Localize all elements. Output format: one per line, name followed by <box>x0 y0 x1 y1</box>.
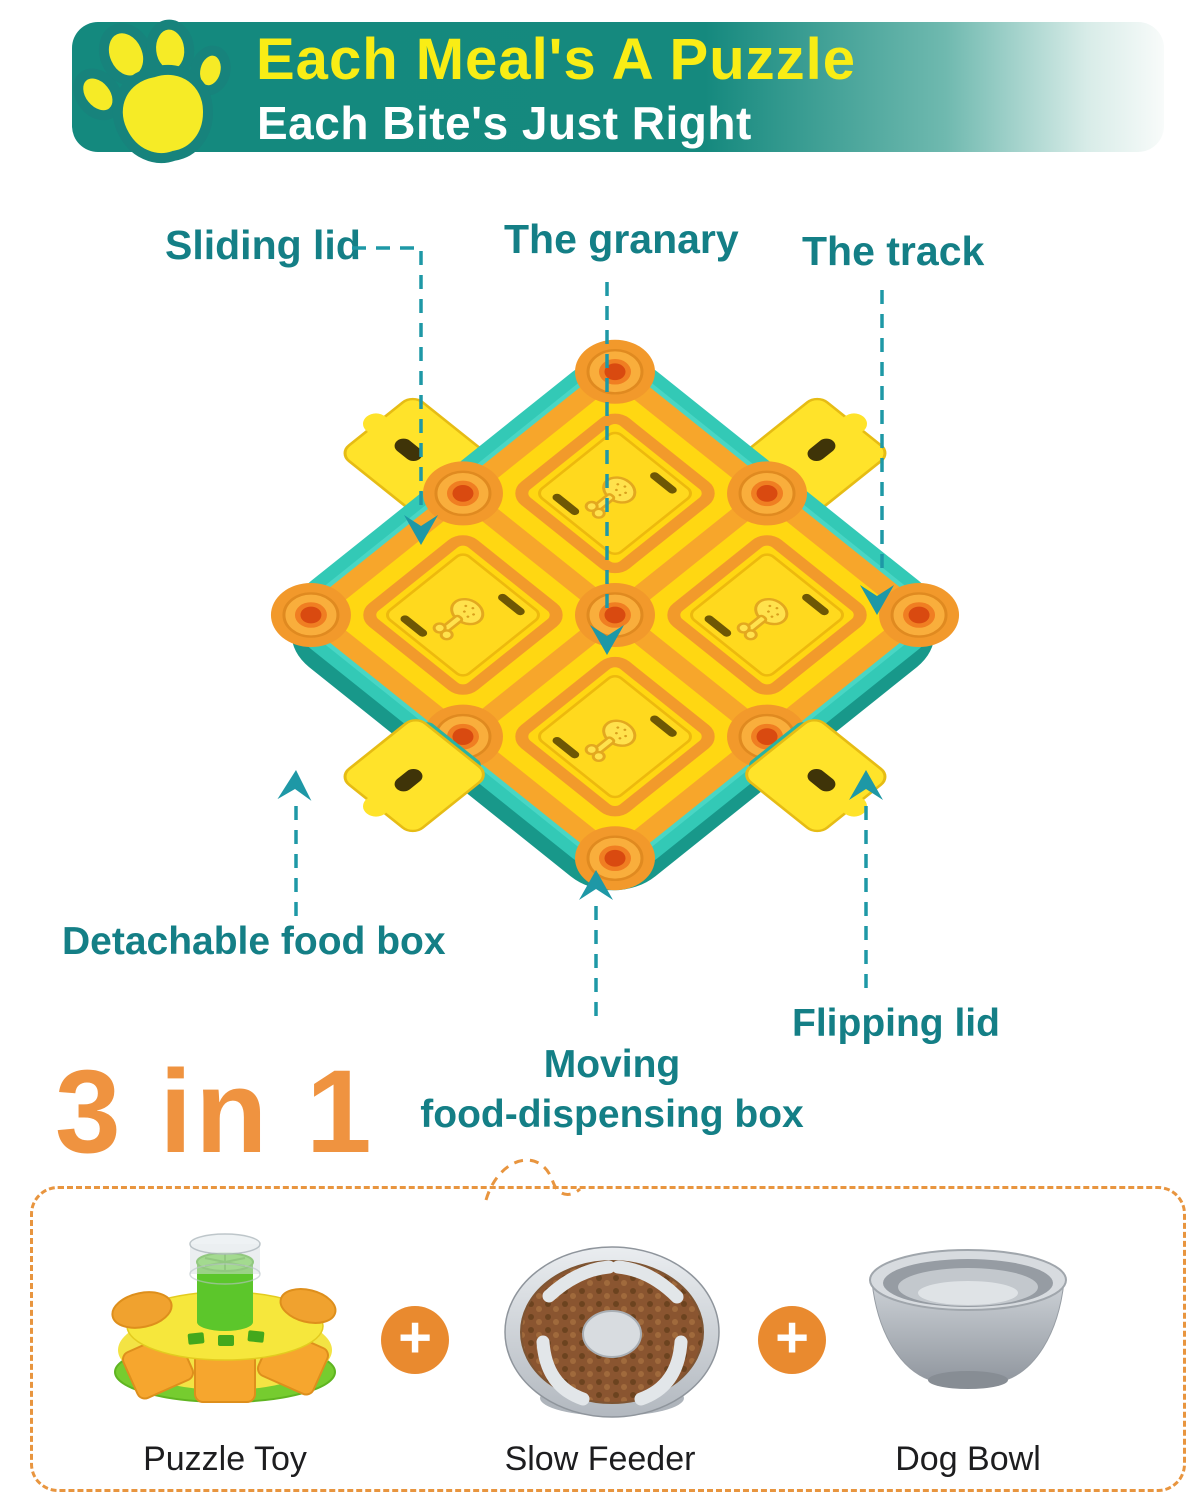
product-infographic: Each Meal's A Puzzle Each Bite's Just Ri… <box>0 0 1198 1500</box>
bundle-item-label-puzzle-toy: Puzzle Toy <box>105 1440 345 1479</box>
three-in-one-heading: 3 in 1 <box>55 1044 375 1180</box>
plus-icon: + <box>381 1306 449 1374</box>
up-arrow-icon <box>277 769 313 801</box>
bundle-item-label-slow-feeder: Slow Feeder <box>480 1440 720 1479</box>
plus-icon: + <box>758 1306 826 1374</box>
bundle-item-label-dog-bowl: Dog Bowl <box>848 1440 1088 1479</box>
puzzle-feeder-product <box>119 218 1112 1012</box>
